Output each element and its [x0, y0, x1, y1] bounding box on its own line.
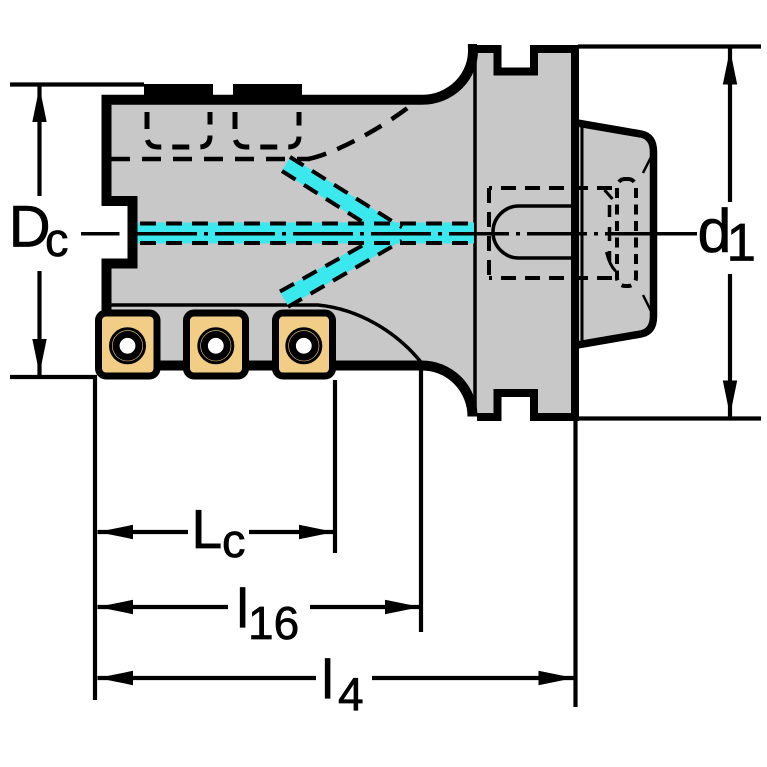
svg-text:l: l	[237, 577, 249, 639]
svg-text:c: c	[222, 514, 246, 567]
svg-text:16: 16	[248, 597, 299, 649]
svg-text:4: 4	[338, 668, 364, 720]
svg-text:c: c	[45, 213, 69, 266]
svg-text:1: 1	[727, 214, 756, 273]
svg-text:l: l	[322, 648, 334, 710]
svg-text:L: L	[192, 498, 223, 560]
